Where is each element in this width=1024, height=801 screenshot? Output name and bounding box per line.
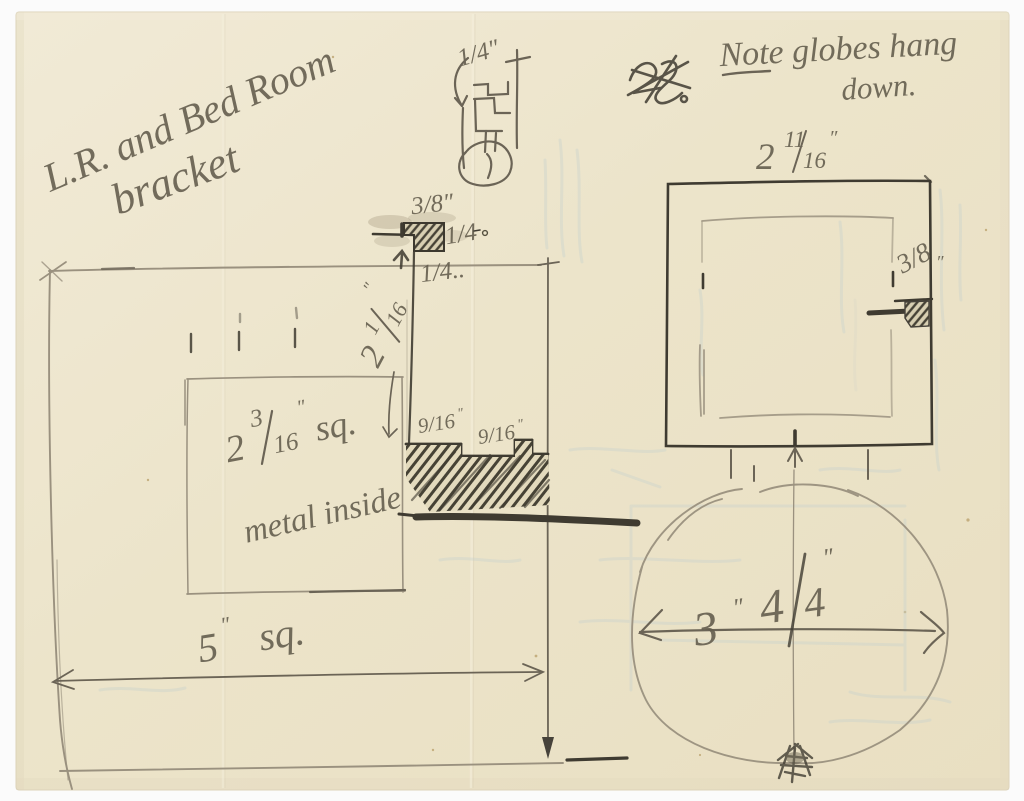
svg-text:1/4..: 1/4..: [419, 256, 466, 288]
svg-text:16: 16: [803, 148, 827, 173]
svg-text:1/4: 1/4: [443, 219, 479, 251]
svg-text:sq.: sq.: [255, 608, 307, 660]
svg-text:″: ″: [936, 252, 944, 272]
svg-text:2: 2: [756, 137, 775, 178]
svg-text:down.: down.: [840, 67, 917, 107]
svg-text:″: ″: [829, 127, 838, 149]
svg-text:sq.: sq.: [311, 402, 359, 449]
